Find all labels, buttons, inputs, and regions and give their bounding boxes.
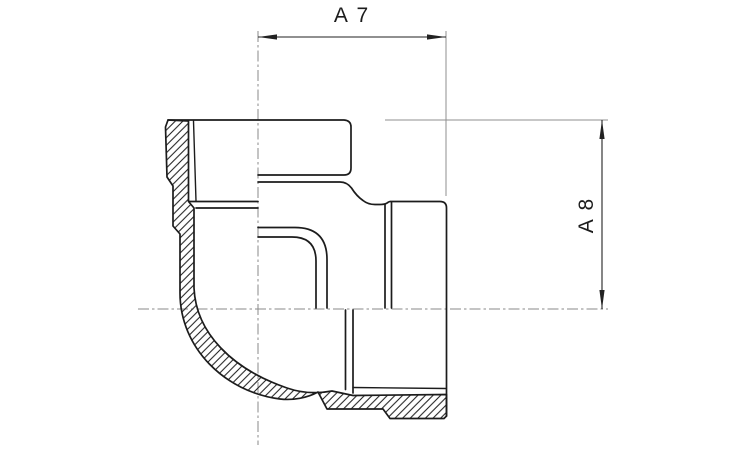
a8-arrow-top-icon: [599, 120, 604, 139]
centerlines: [138, 31, 608, 445]
dimension-a8: [599, 120, 604, 309]
part-outline: [168, 120, 447, 416]
section-hatch-wall: [166, 120, 447, 419]
dimension-label-a7: A 7: [322, 4, 382, 28]
top-socket-thread-line: [194, 121, 197, 201]
a7-arrow-left-icon: [258, 34, 277, 39]
elbow-fitting-drawing: [0, 0, 750, 450]
right-socket-thread-line: [353, 388, 446, 389]
inner-corner-edge-inner: [258, 237, 316, 308]
dimension-label-a8: A 8: [575, 185, 599, 245]
dimension-a7: [258, 34, 446, 39]
technical-drawing-canvas: A 7 A 8: [0, 0, 750, 450]
extension-lines: [385, 31, 608, 196]
a8-arrow-bottom-icon: [599, 290, 604, 309]
a7-arrow-right-icon: [427, 34, 446, 39]
